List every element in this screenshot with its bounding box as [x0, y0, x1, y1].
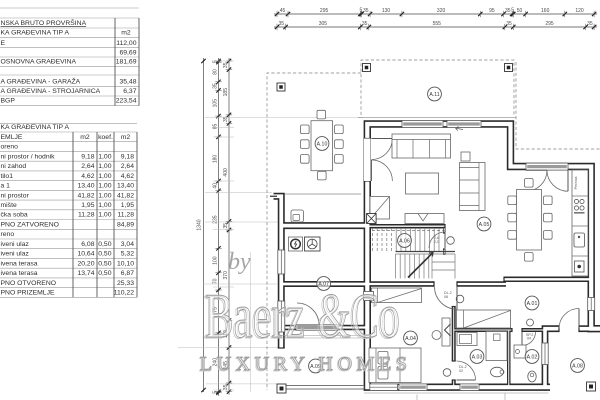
svg-text:mište: mište — [1, 202, 17, 209]
svg-text:6,87: 6,87 — [121, 270, 134, 277]
svg-text:45: 45 — [280, 8, 286, 14]
svg-text:1,00: 1,00 — [98, 153, 111, 160]
svg-text:35: 35 — [213, 83, 219, 89]
svg-text:reno: reno — [1, 231, 15, 238]
svg-text:235: 235 — [213, 215, 219, 224]
svg-text:A.11: A.11 — [429, 92, 439, 98]
svg-text:EMLJE: EMLJE — [1, 134, 23, 141]
svg-text:KA GRAĐEVINA TIP A: KA GRAĐEVINA TIP A — [1, 29, 70, 36]
svg-text:35: 35 — [223, 116, 229, 122]
svg-text:A GRAĐEVINA - STROJARNICA: A GRAĐEVINA - STROJARNICA — [1, 88, 101, 95]
svg-text:A.08: A.08 — [572, 363, 583, 369]
svg-text:0,50: 0,50 — [98, 260, 111, 267]
svg-text:10,64: 10,64 — [77, 251, 94, 258]
svg-text:35: 35 — [223, 384, 229, 390]
svg-text:koef.: koef. — [98, 134, 113, 141]
svg-text:OSNOVNA GRAĐEVINA: OSNOVNA GRAĐEVINA — [1, 59, 77, 66]
svg-text:1,00: 1,00 — [98, 183, 111, 190]
svg-text:1340: 1340 — [197, 219, 203, 230]
svg-text:295: 295 — [320, 8, 329, 14]
svg-text:100: 100 — [213, 256, 219, 265]
svg-text:oreno: oreno — [1, 144, 19, 151]
svg-text:LUXURY HOMES: LUXURY HOMES — [200, 353, 412, 375]
svg-text:35,48: 35,48 — [119, 79, 136, 86]
svg-text:PNO OTVORENO: PNO OTVORENO — [1, 280, 57, 287]
svg-text:295: 295 — [545, 21, 554, 27]
svg-text:40: 40 — [213, 183, 219, 189]
svg-text:35: 35 — [223, 223, 229, 229]
svg-text:čka soba: čka soba — [1, 212, 28, 219]
svg-text:A.03: A.03 — [472, 354, 483, 360]
svg-text:by: by — [228, 249, 251, 275]
svg-text:160: 160 — [541, 8, 550, 14]
svg-text:6,08: 6,08 — [81, 241, 94, 248]
svg-text:A.02: A.02 — [527, 354, 538, 360]
svg-text:02: 02 — [459, 369, 463, 373]
svg-text:130: 130 — [382, 8, 391, 14]
svg-text:A.06: A.06 — [399, 238, 410, 244]
svg-text:0,50: 0,50 — [98, 251, 111, 258]
svg-text:110,22: 110,22 — [114, 290, 135, 297]
svg-text:1,00: 1,00 — [98, 163, 111, 170]
svg-text:305: 305 — [319, 21, 328, 27]
svg-text:04: 04 — [527, 337, 531, 341]
svg-text:KA GRAĐEVINA TIP A: KA GRAĐEVINA TIP A — [1, 124, 70, 131]
svg-text:1,00: 1,00 — [98, 192, 111, 199]
svg-text:2,64: 2,64 — [121, 163, 134, 170]
svg-text:5: 5 — [213, 60, 219, 63]
svg-text:A.05: A.05 — [479, 222, 490, 228]
svg-text:ivena terasa: ivena terasa — [1, 270, 38, 277]
svg-text:5,32: 5,32 — [121, 251, 134, 258]
svg-text:25,33: 25,33 — [117, 280, 134, 287]
svg-text:A.10: A.10 — [317, 141, 328, 147]
svg-text:08: 08 — [444, 295, 448, 299]
svg-text:181,69: 181,69 — [116, 59, 137, 66]
svg-text:11,28: 11,28 — [78, 212, 95, 219]
svg-text:A GRAĐEVINA - GARAŽA: A GRAĐEVINA - GARAŽA — [1, 77, 81, 86]
svg-text:4,62: 4,62 — [121, 173, 134, 180]
svg-text:185: 185 — [223, 88, 229, 97]
svg-text:85: 85 — [213, 124, 219, 130]
svg-text:35: 35 — [587, 21, 593, 27]
svg-text:5: 5 — [511, 8, 514, 14]
svg-text:m2: m2 — [121, 29, 131, 36]
svg-text:6,37: 6,37 — [123, 88, 136, 95]
svg-text:m2: m2 — [121, 134, 131, 141]
svg-text:E: E — [1, 40, 6, 47]
svg-text:1,00: 1,00 — [98, 202, 111, 209]
svg-text:35: 35 — [362, 21, 368, 27]
svg-text:3,04: 3,04 — [121, 241, 134, 248]
svg-text:180: 180 — [213, 155, 219, 164]
svg-text:&Co: &Co — [318, 280, 400, 351]
svg-text:m2: m2 — [80, 134, 90, 141]
svg-text:5: 5 — [213, 391, 219, 394]
svg-text:35: 35 — [505, 8, 511, 14]
svg-text:10,10: 10,10 — [117, 260, 134, 267]
svg-text:0,50: 0,50 — [98, 241, 111, 248]
svg-text:1,00: 1,00 — [98, 173, 111, 180]
svg-text:50: 50 — [517, 8, 523, 14]
svg-text:120: 120 — [575, 8, 584, 14]
svg-text:1,00: 1,00 — [98, 212, 111, 219]
svg-text:Pećnica: Pećnica — [574, 177, 578, 190]
svg-text:BGP: BGP — [1, 97, 16, 104]
svg-text:20,20: 20,20 — [77, 260, 94, 267]
svg-text:105: 105 — [213, 99, 219, 108]
svg-text:2,0: 2,0 — [434, 240, 439, 244]
svg-text:A.04: A.04 — [405, 336, 416, 342]
svg-text:9,18: 9,18 — [121, 153, 134, 160]
svg-text:tilo1: tilo1 — [1, 173, 14, 180]
svg-text:Baerz: Baerz — [205, 280, 305, 351]
svg-text:41,82: 41,82 — [117, 192, 134, 199]
svg-text:PNO ZATVORENO: PNO ZATVORENO — [1, 222, 59, 229]
svg-text:35: 35 — [223, 62, 229, 68]
svg-text:84,89: 84,89 — [117, 222, 134, 229]
svg-text:a 1: a 1 — [1, 183, 11, 190]
svg-text:4,62: 4,62 — [81, 173, 94, 180]
svg-text:80: 80 — [213, 69, 219, 75]
svg-text:ni prostor: ni prostor — [1, 192, 30, 199]
svg-text:13,40: 13,40 — [77, 183, 94, 190]
svg-text:1,95: 1,95 — [121, 202, 134, 209]
svg-text:555: 555 — [433, 21, 442, 27]
svg-text:69,69: 69,69 — [119, 49, 136, 56]
svg-text:ni zahod: ni zahod — [1, 163, 27, 170]
svg-text:35: 35 — [363, 8, 369, 14]
svg-text:223,54: 223,54 — [116, 97, 137, 104]
svg-text:13,74: 13,74 — [77, 270, 94, 277]
svg-text:0,50: 0,50 — [98, 270, 111, 277]
svg-text:ivena terasa: ivena terasa — [1, 260, 38, 267]
svg-text:11,28: 11,28 — [117, 212, 134, 219]
svg-text:13,40: 13,40 — [117, 183, 134, 190]
svg-text:9,18: 9,18 — [81, 153, 94, 160]
svg-text:41,82: 41,82 — [77, 192, 94, 199]
svg-text:35: 35 — [506, 21, 512, 27]
svg-text:iveni ulaz: iveni ulaz — [1, 251, 30, 258]
svg-text:ni prostor / hodnik: ni prostor / hodnik — [1, 153, 56, 160]
svg-text:PNO PRIZEMLJE: PNO PRIZEMLJE — [1, 290, 55, 297]
svg-text:2,64: 2,64 — [81, 163, 94, 170]
svg-text:112,00: 112,00 — [116, 40, 137, 47]
svg-text:iveni ulaz: iveni ulaz — [1, 241, 30, 248]
svg-text:A.01: A.01 — [527, 301, 538, 307]
svg-text:35: 35 — [279, 21, 285, 27]
svg-text:1,95: 1,95 — [81, 202, 94, 209]
svg-text:400: 400 — [223, 168, 229, 177]
svg-text:320: 320 — [437, 8, 446, 14]
svg-text:95: 95 — [489, 8, 495, 14]
svg-text:NSKA BRUTO PROVRŠINA: NSKA BRUTO PROVRŠINA — [1, 18, 87, 27]
